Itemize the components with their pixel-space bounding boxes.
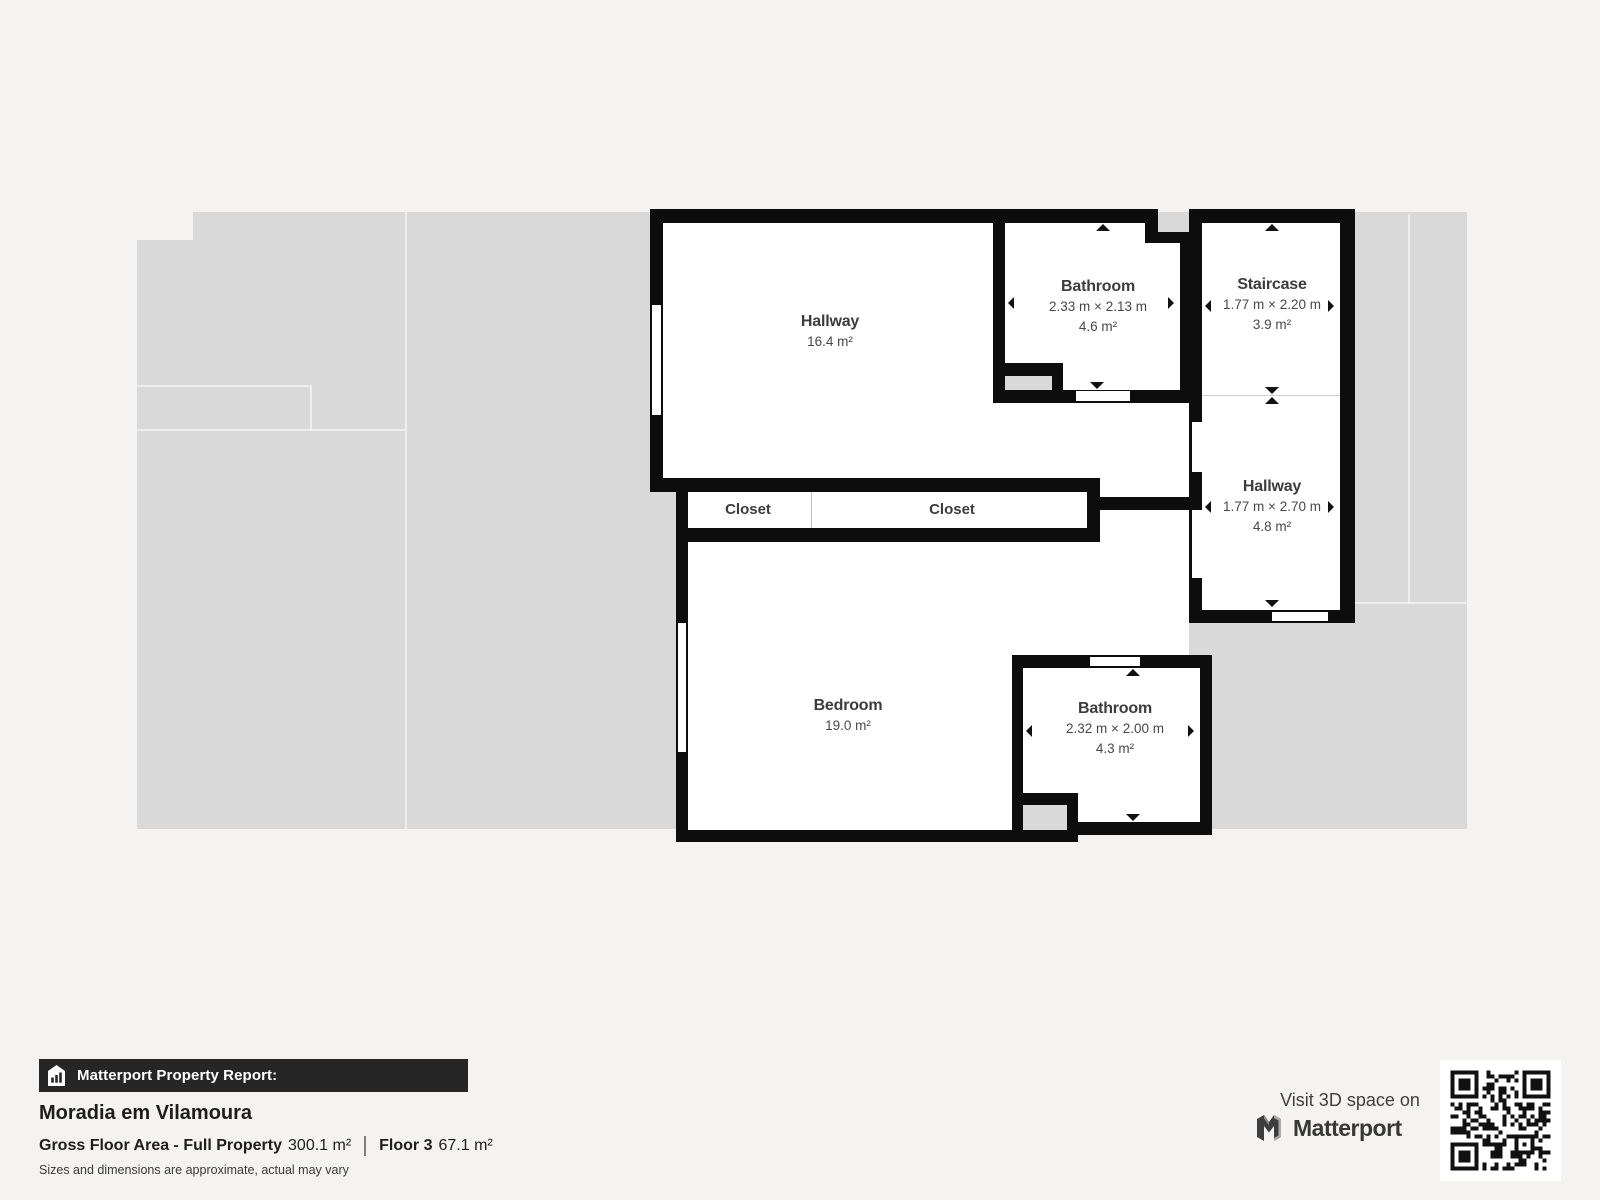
backdrop-seam-line xyxy=(1408,214,1410,603)
room-interior-bedroom xyxy=(688,542,1012,830)
house-bar-chart-icon xyxy=(48,1065,65,1086)
dimension-arrow xyxy=(1126,814,1140,821)
floor-plan xyxy=(0,0,1600,1200)
divider xyxy=(364,1136,366,1156)
backdrop-seam-line xyxy=(137,429,405,431)
wall-segment xyxy=(1145,223,1158,232)
report-title-bar: Matterport Property Report: xyxy=(39,1059,468,1092)
alcove-recess xyxy=(1005,376,1052,390)
dimension-arrow xyxy=(1265,600,1279,607)
wall-segment xyxy=(1067,822,1212,835)
wall-segment xyxy=(1067,805,1078,822)
floor-area-value: 67.1 m² xyxy=(439,1135,493,1157)
dimension-arrow xyxy=(1265,397,1279,404)
door-opening xyxy=(1090,657,1140,666)
room-interior-hallway xyxy=(993,403,1189,478)
wall-segment xyxy=(1052,376,1063,390)
brand-wordmark: Matterport xyxy=(1293,1115,1402,1142)
dimension-arrow xyxy=(1096,224,1110,231)
backdrop-seam-line xyxy=(1355,602,1467,604)
backdrop-seam-line xyxy=(137,385,310,387)
matterport-floorplan-report: Hallway 16.4 m² Bathroom 2.33 m × 2.13 m… xyxy=(0,0,1600,1200)
gross-floor-area-label: Gross Floor Area - Full Property xyxy=(39,1135,282,1157)
qr-code xyxy=(1440,1060,1561,1181)
dimension-arrow xyxy=(1328,300,1334,312)
alcove-recess xyxy=(1023,805,1067,830)
dimension-arrow xyxy=(1090,382,1104,389)
wall-segment xyxy=(1189,209,1355,223)
dimension-arrow xyxy=(1328,501,1334,513)
report-label: Matterport Property Report: xyxy=(77,1067,277,1084)
property-name: Moradia em Vilamoura xyxy=(39,1101,252,1125)
disclaimer-text: Sizes and dimensions are approximate, ac… xyxy=(39,1163,349,1178)
door-opening xyxy=(1192,510,1202,578)
wall-segment xyxy=(1087,478,1100,542)
backdrop-region xyxy=(137,240,193,829)
room-interior-hallway xyxy=(663,223,993,478)
dimension-arrow xyxy=(1265,224,1279,231)
dimension-arrow xyxy=(1026,725,1032,737)
window-opening xyxy=(678,623,686,752)
backdrop-seam-line xyxy=(405,212,407,829)
door-opening xyxy=(1192,422,1202,472)
area-summary: Gross Floor Area - Full Property 300.1 m… xyxy=(39,1135,493,1157)
room-label-closet-left: Closet xyxy=(648,501,848,519)
room-interior-bedroom xyxy=(1012,542,1100,655)
matterport-logo: Matterport xyxy=(1255,1113,1402,1143)
dimension-arrow xyxy=(1205,300,1211,312)
wall-segment xyxy=(1012,655,1023,842)
room-interior-hallway xyxy=(1100,478,1189,497)
room-interior-bedroom xyxy=(1100,510,1189,655)
dimension-arrow xyxy=(1126,669,1140,676)
room-label-closet-right: Closet xyxy=(852,501,1052,519)
door-opening xyxy=(1272,612,1328,621)
wall-segment xyxy=(650,478,1100,492)
gross-floor-area-value: 300.1 m² xyxy=(288,1135,351,1157)
dimension-arrow xyxy=(1188,725,1194,737)
staircase-hallway-divider-line xyxy=(1202,395,1340,397)
window-opening xyxy=(652,305,661,415)
wall-segment xyxy=(1200,655,1212,835)
door-opening xyxy=(1076,391,1130,401)
wall-segment xyxy=(1340,209,1355,623)
wall-segment xyxy=(1100,497,1189,510)
matterport-m-icon xyxy=(1255,1113,1283,1143)
dimension-arrow xyxy=(1205,501,1211,513)
visit-3d-text: Visit 3D space on xyxy=(1280,1089,1420,1111)
dimension-arrow xyxy=(1265,387,1279,394)
room-interior-staircase-hallway xyxy=(1202,223,1340,610)
backdrop-seam-line xyxy=(310,385,312,430)
wall-segment xyxy=(676,528,1100,542)
wall-segment xyxy=(1023,793,1078,805)
wall-segment xyxy=(650,209,1158,223)
wall-segment xyxy=(993,363,1063,376)
floor-label: Floor 3 xyxy=(379,1135,432,1157)
room-interior-bathroom-bottom xyxy=(1023,668,1200,793)
dimension-arrow xyxy=(1008,297,1014,309)
dimension-arrow xyxy=(1168,297,1174,309)
